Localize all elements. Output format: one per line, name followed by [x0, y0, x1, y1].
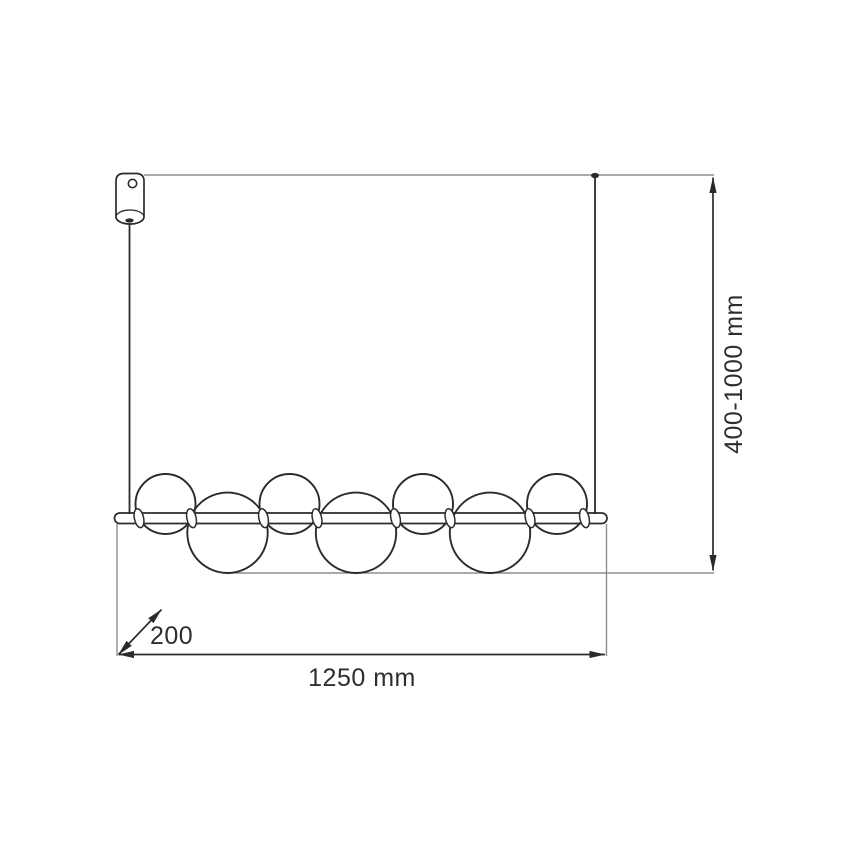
width-dimension-label: 1250 mm	[308, 664, 416, 692]
height-dimension-label: 400-1000 mm	[720, 294, 748, 454]
connector-ring	[133, 508, 146, 529]
glass-sphere	[136, 474, 196, 534]
depth-dimension-label: 200	[150, 622, 193, 650]
glass-sphere	[393, 474, 453, 534]
connector-ring	[578, 508, 591, 529]
glass-sphere	[316, 493, 396, 573]
glass-sphere	[187, 493, 267, 573]
pendant-lamp-dimension-diagram: 400-1000 mm 1250 mm 200	[0, 0, 868, 868]
glass-sphere	[450, 493, 530, 573]
canopy-cable-outlet	[125, 218, 133, 222]
connector-ring	[444, 508, 457, 529]
diagram-canvas: 400-1000 mm 1250 mm 200	[0, 0, 868, 868]
connector-ring	[524, 508, 537, 529]
connector-ring	[389, 508, 402, 529]
ceiling-canopy	[116, 174, 144, 225]
canopy-screw-hole-icon	[128, 179, 136, 187]
glass-sphere	[527, 474, 587, 534]
connector-ring	[257, 508, 270, 529]
